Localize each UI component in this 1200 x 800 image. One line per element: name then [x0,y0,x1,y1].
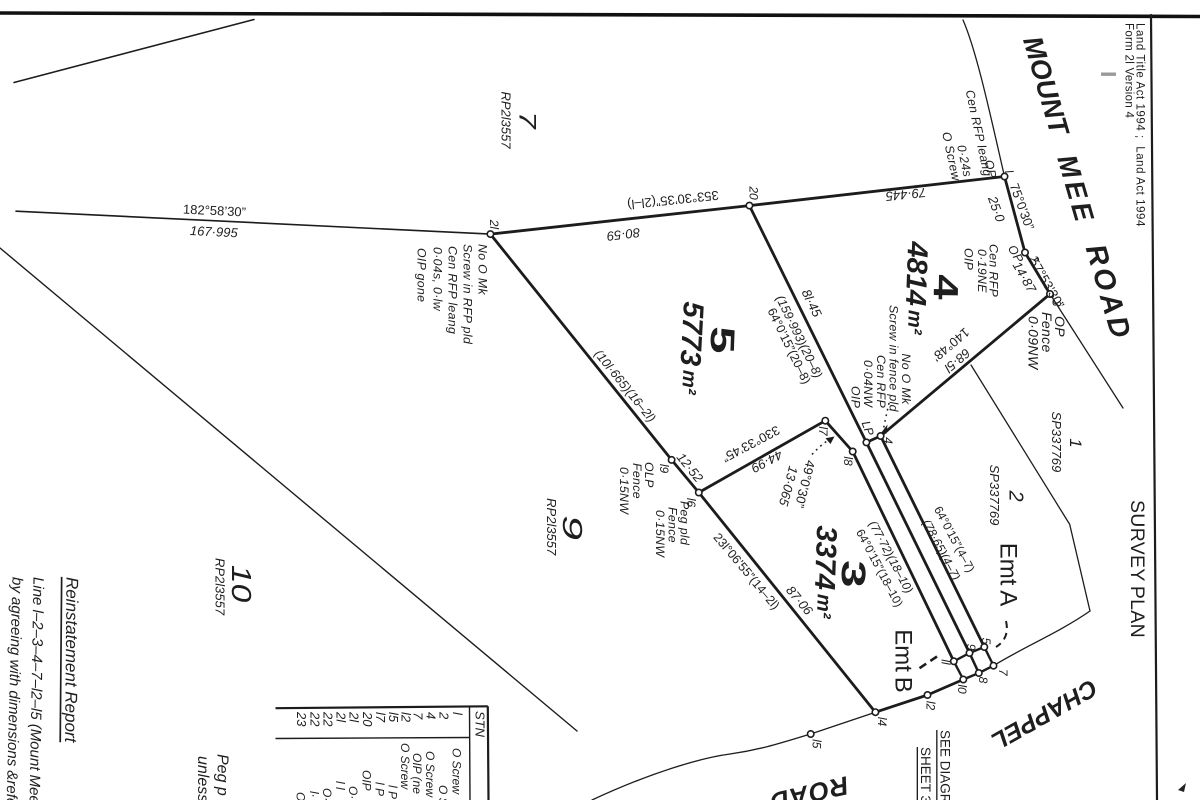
svg-text:unless: unless [194,756,211,800]
svg-text:l8: l8 [841,456,855,466]
svg-text:Emt A: Emt A [994,543,1021,606]
svg-text:167·995: 167·995 [190,223,239,240]
svg-text:l P: l P [385,785,399,799]
svg-text:SEE DIAGRAM: SEE DIAGRAM [938,730,953,800]
svg-text:Reinstatement Report: Reinstatement Report [61,577,81,744]
svg-text:No O Mk: No O Mk [475,244,489,295]
svg-text:l9: l9 [657,464,671,474]
svg-text:RP2l3557: RP2l3557 [499,91,514,149]
svg-text:O Scr: O Scr [436,785,450,800]
svg-text:Form 2l Version 4: Form 2l Version 4 [1123,23,1135,119]
svg-text:OIP gone: OIP gone [415,248,429,302]
svg-text:SURVEY PLAN: SURVEY PLAN [1126,500,1148,638]
svg-text:l0: l0 [955,684,969,694]
svg-text:0·19NE: 0·19NE [975,249,989,293]
svg-text:l5: l5 [810,739,824,749]
svg-text:9: 9 [964,644,978,651]
svg-text:ll: ll [939,659,953,665]
svg-text:0·04s, 0·lw: 0·04s, 0·lw [431,247,445,312]
svg-text:4: 4 [881,437,895,444]
svg-text:1: 1 [1066,438,1085,447]
svg-text:OIP: OIP [962,248,976,271]
svg-text:Fence: Fence [630,463,644,499]
svg-text:SP337769: SP337769 [987,465,1002,526]
svg-text:2l: 2l [487,219,501,230]
svg-text:8: 8 [976,677,990,684]
svg-text:O Screw: O Screw [398,743,412,790]
svg-text:O Screw: O Screw [450,748,464,795]
svg-text:182°58’30”: 182°58’30” [183,202,247,220]
svg-text:0·09NW: 0·09NW [1026,316,1042,371]
svg-text:Cen RFP leang: Cen RFP leang [446,246,460,334]
svg-text:23: 23 [294,711,309,727]
svg-text:O·: O· [320,788,334,800]
svg-text:Peg p: Peg p [214,754,231,796]
svg-text:RP2l3557: RP2l3557 [213,558,228,616]
svg-text:9: 9 [557,515,588,540]
svg-text:l l: l l [333,781,347,790]
svg-text:OIP: OIP [849,386,863,409]
svg-text:5: 5 [703,326,742,355]
svg-text:l·: l· [307,791,321,798]
svg-text:5: 5 [979,638,993,645]
svg-text:2: 2 [1005,489,1027,501]
svg-text:STN: STN [473,711,488,738]
svg-text:OIP: OIP [359,770,373,791]
svg-text:l7: l7 [816,426,830,437]
svg-text:l2: l2 [924,701,938,711]
svg-text:SP337769: SP337769 [1049,412,1064,473]
svg-text:l4: l4 [875,717,889,727]
svg-text:7: 7 [514,111,541,130]
svg-text:0·15NW: 0·15NW [653,510,667,558]
svg-text:SHEET 3: SHEET 3 [918,747,933,800]
svg-text:10: 10 [226,565,258,602]
svg-text:Screw in RFP pld: Screw in RFP pld [461,244,475,345]
svg-text:l P: l P [373,782,387,796]
svg-text:3: 3 [1050,300,1064,307]
svg-text:O·: O· [294,792,308,800]
svg-text:RP2l3557: RP2l3557 [544,498,559,556]
svg-text:Cen RFP: Cen RFP [874,355,888,408]
svg-text:O·: O· [346,786,360,799]
svg-text:20: 20 [747,185,761,200]
svg-text:0·15NW: 0·15NW [617,467,631,515]
svg-text:Emt B: Emt B [890,629,917,692]
